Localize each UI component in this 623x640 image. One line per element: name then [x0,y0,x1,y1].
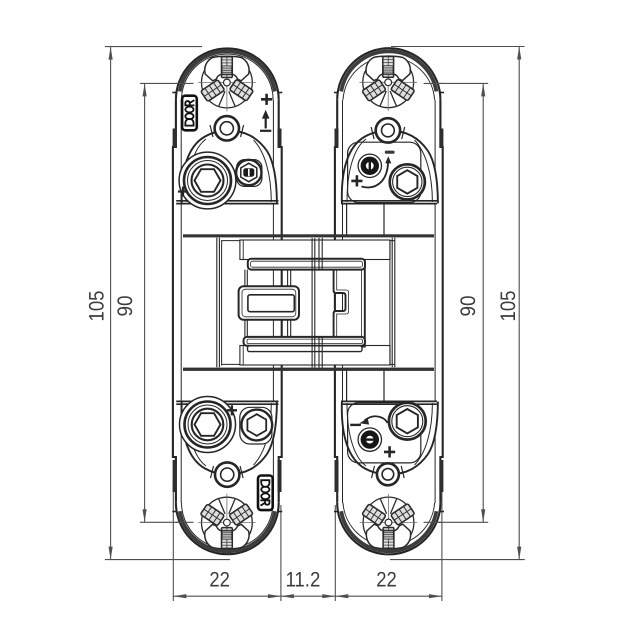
svg-text:90: 90 [114,296,137,317]
svg-text:11.2: 11.2 [285,569,320,592]
svg-text:90: 90 [457,296,480,317]
svg-text:105: 105 [86,291,109,322]
svg-text:22: 22 [209,569,230,592]
svg-text:105: 105 [497,291,520,322]
svg-text:22: 22 [376,569,397,592]
